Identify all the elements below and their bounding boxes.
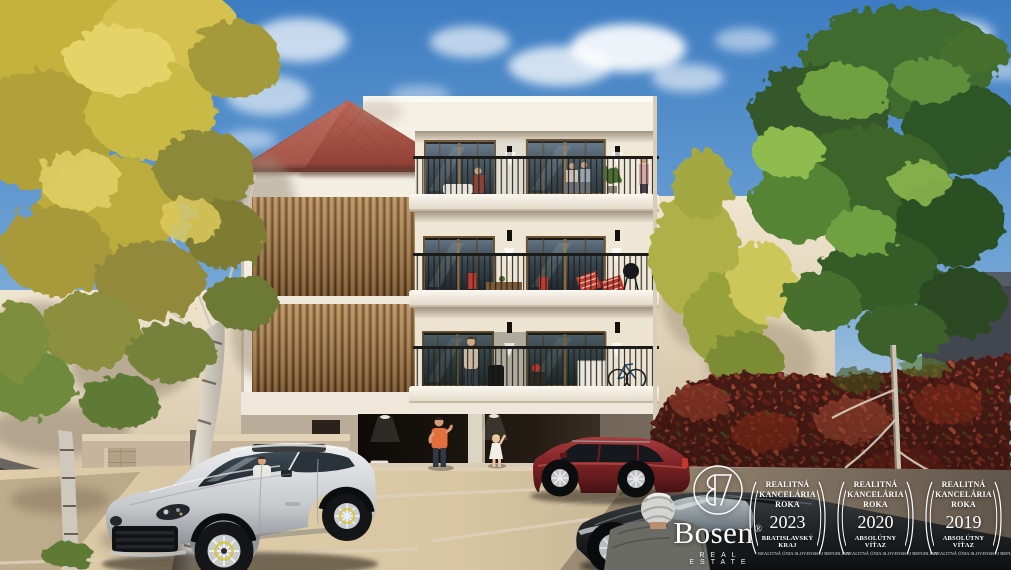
balcony-top <box>413 131 659 196</box>
wood-slat-screen-upper <box>252 197 420 296</box>
balcony-lower <box>413 307 659 393</box>
balcony-middle <box>413 211 659 298</box>
wood-slat-screen-lower <box>252 304 418 392</box>
architectural-render: Bosen® REAL ESTATE REALITNÁ KANCELÁRIA R… <box>0 0 1011 570</box>
render-scene <box>0 0 1011 570</box>
